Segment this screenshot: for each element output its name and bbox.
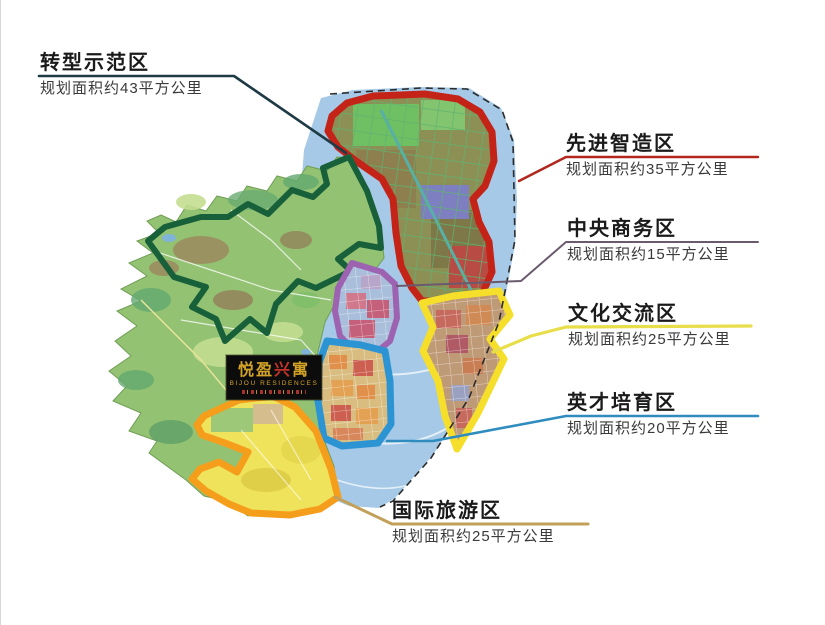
zone-area-cbd: 规划面积约15平方公里 [567, 246, 730, 263]
zone-area: 规划面积约25平方公里 [392, 528, 555, 545]
zone-area-tourism: 规划面积约25平方公里 [392, 528, 555, 545]
logo-tagline-strip [242, 390, 306, 394]
logo-english-name: BIJOU RESIDENCES [230, 380, 319, 388]
developer-watermark: 悦盈兴寓 BIJOU RESIDENCES [226, 355, 322, 400]
zone-area-talent: 规划面积约20平方公里 [567, 420, 730, 437]
zone-title: 先进智造区 [566, 133, 676, 155]
logo-chinese-name: 悦盈兴寓 [238, 362, 310, 379]
zone-area: 规划面积约35平方公里 [566, 161, 729, 178]
zone-label-cbd: 中央商务区 [567, 218, 677, 240]
zone-label-transformation: 转型示范区 [40, 52, 150, 74]
zone-area: 规划面积约25平方公里 [568, 331, 731, 348]
zone-label-tourism: 国际旅游区 [392, 500, 502, 522]
zone-area: 规划面积约43平方公里 [40, 80, 203, 97]
zone-title: 中央商务区 [567, 218, 677, 240]
planning-map-image: 悦盈兴寓 BIJOU RESIDENCES 转型示范区 规划面积约43平方公里 … [0, 0, 825, 625]
zone-title: 国际旅游区 [392, 500, 502, 522]
zone-title: 转型示范区 [40, 52, 150, 74]
zone-title: 文化交流区 [568, 303, 678, 325]
zone-label-talent: 英才培育区 [567, 392, 677, 414]
zone-title: 英才培育区 [567, 392, 677, 414]
zone-talent-cultivation [311, 340, 396, 450]
zone-area-manufacturing: 规划面积约35平方公里 [566, 161, 729, 178]
zone-area-transformation: 规划面积约43平方公里 [40, 80, 203, 97]
zone-area-cultural: 规划面积约25平方公里 [568, 331, 731, 348]
zone-area: 规划面积约15平方公里 [567, 246, 730, 263]
zone-label-cultural: 文化交流区 [568, 303, 678, 325]
zone-label-manufacturing: 先进智造区 [566, 133, 676, 155]
zone-area: 规划面积约20平方公里 [567, 420, 730, 437]
